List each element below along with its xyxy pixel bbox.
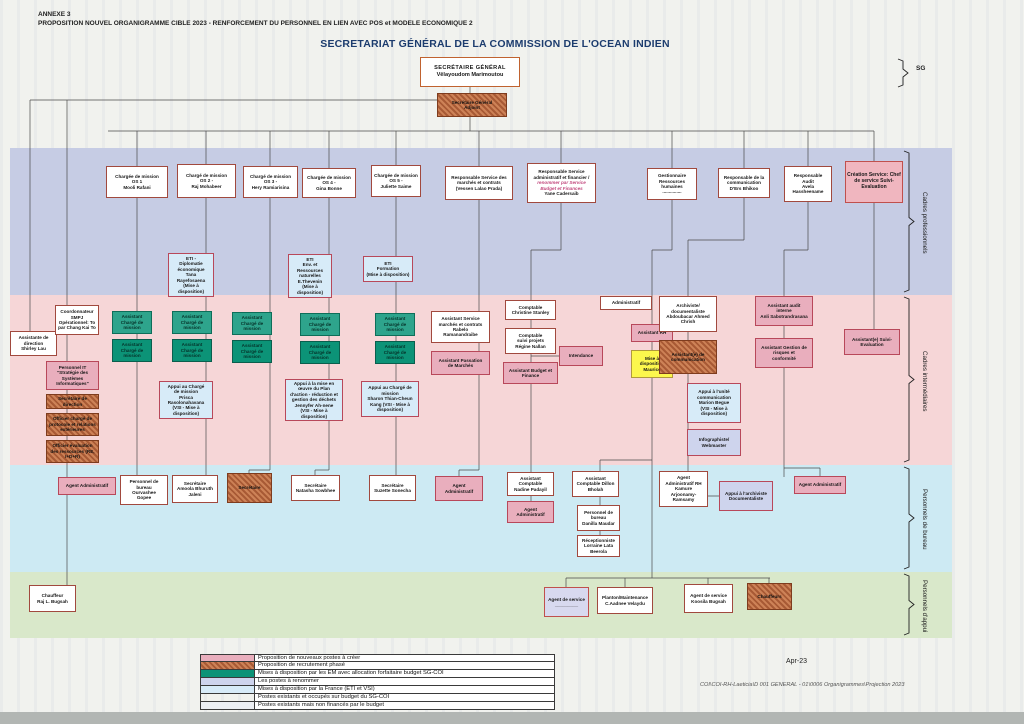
org-box-appui-charge-mission-1: Appui au Chargéde missionPriscaRasolonah… bbox=[159, 381, 213, 419]
org-box-officier-protocole: Officier chargé deprotocole et relations… bbox=[46, 413, 99, 436]
org-box-responsable-communication: Responsable de lacommunicationD'Ers Bhik… bbox=[718, 168, 770, 198]
legend-row: Proposition de recrutement phasé bbox=[200, 662, 555, 670]
legend-label: Mises à disposition par les EM avec allo… bbox=[255, 670, 555, 678]
organigramme-page: ANNEXE 3 PROPOSITION NOUVEL ORGANIGRAMME… bbox=[0, 0, 1024, 724]
legend-table: Proposition de nouveaux postes à créerPr… bbox=[200, 654, 555, 710]
legend-row: Postes existants mais non financés par l… bbox=[200, 702, 555, 710]
org-box-assistant-cm2-a: AssistantChargé demission bbox=[172, 311, 212, 334]
org-box-agent-administratif-1: Agent Administratif bbox=[58, 477, 116, 495]
org-box-administratif: Administratif bbox=[600, 296, 652, 310]
legend-swatch bbox=[200, 694, 255, 702]
org-box-assistant-communication: Assistant(e) decommunication bbox=[659, 340, 717, 374]
org-box-officier-evaluation-ressources: Officier évaluationdes ressources (RE,I+… bbox=[46, 440, 99, 463]
org-box-charge-mission-os2: Chargé de missionOS 2 -Raj Mohabeer bbox=[177, 164, 236, 198]
org-box-assistant-cm3-a: AssistantChargé demission bbox=[232, 312, 272, 335]
legend-swatch bbox=[200, 678, 255, 686]
org-box-charge-mission-os5: Chargée de missionOS 5 -Juliette Saime bbox=[371, 165, 421, 197]
org-chart: SECRÉTAIRE GÉNÉRALVêlayoudom MarimoutouS… bbox=[0, 0, 1024, 724]
org-box-responsable-administratif-financier: Responsable Serviceadministratif et fina… bbox=[527, 163, 596, 203]
legend-row: Proposition de nouveaux postes à créer bbox=[200, 654, 555, 662]
org-box-assistant-passation-marches: Assistant Passationde Marchés bbox=[431, 351, 490, 375]
legend-swatch bbox=[200, 670, 255, 678]
org-box-intendance: Intendance bbox=[559, 346, 603, 366]
org-box-assistant-cm4-a: AssistantChargé demission bbox=[300, 313, 340, 336]
org-box-archiviste-documentaliste: Archiviste/documentalisteAbdoubacar Ahme… bbox=[659, 296, 717, 332]
org-box-creation-service-suivi-evaluation: Création Service: Chefde service Suivi-E… bbox=[845, 161, 903, 203]
org-box-appui-archiviste: Appui à l'archivisteDocumentaliste bbox=[719, 481, 773, 511]
org-box-personnel-bureau-1: Personnel debureauOurvasheeGopee bbox=[120, 475, 168, 505]
legend-row: Mises à disposition par la France (ETI e… bbox=[200, 686, 555, 694]
org-box-infographiste-webmaster: Infographiste/Webmaster bbox=[687, 429, 741, 456]
legend-label: Les postes à renommer bbox=[255, 678, 555, 686]
legend-swatch bbox=[200, 654, 255, 662]
org-box-assistant-cm5-b: AssistantChargé demission bbox=[375, 341, 415, 364]
org-box-agent-administratif-2: AgentAdministratif bbox=[435, 476, 483, 501]
org-box-agent-administratif-4: Agent Administratif bbox=[794, 476, 846, 494]
org-box-charge-mission-os3: Chargé de missionOS 3 -Hery Ramiarisina bbox=[243, 166, 298, 198]
org-box-appui-plan-action-dechets: Appui à la mise enœuvre du Pland'action … bbox=[285, 379, 343, 421]
org-box-assistant-cm2-b: AssistantChargé demission bbox=[172, 339, 212, 362]
org-box-assistant-cm3-b: AssistantChargé demission bbox=[232, 340, 272, 363]
org-box-responsable-marches-contrats: Responsable Service desmarchés et contra… bbox=[445, 166, 513, 200]
org-box-assistante-direction: Assistante dedirectionShirley Lau bbox=[10, 331, 57, 356]
org-box-eti-diplomatie-economique: ETI -DiplomatieéconomiqueTanaRayefosaena… bbox=[168, 253, 214, 297]
legend-row: Postes existants et occupés sur budget d… bbox=[200, 694, 555, 702]
org-box-assistant-cm1-b: AssistantChargé demission bbox=[112, 339, 152, 362]
legend-label: Postes existants mais non financés par l… bbox=[255, 702, 555, 710]
org-box-coordonnateur-smpj: CoordonnateurSMPJOpérationnel: Topar Cha… bbox=[55, 305, 99, 335]
org-box-planton-maintenance: Planton/MaintenanceC.Aadnee Velaydu bbox=[597, 587, 653, 614]
org-box-receptionniste: RéceptionnisteLorraine LataBeerola bbox=[577, 535, 620, 557]
org-box-eti-formation: ETIFormation(Mise à disposition) bbox=[363, 256, 413, 282]
org-box-secretaire-general: SECRÉTAIRE GÉNÉRALVêlayoudom Marimoutou bbox=[420, 57, 520, 87]
legend-swatch bbox=[200, 662, 255, 670]
org-box-agent-administratif-3: AgentAdministratif bbox=[507, 501, 554, 523]
org-box-assistant-cm4-b: AssistantChargé demission bbox=[300, 341, 340, 364]
legend-row: Les postes à renommer bbox=[200, 678, 555, 686]
org-box-assistant-gestion-risques: Assistant Gestion derisques etconformité bbox=[755, 338, 813, 368]
org-box-secretaire-general-adjoint: Secrétaire GénéralAdjoint bbox=[437, 93, 507, 117]
org-box-chauffeurs: Chauffeurs bbox=[747, 583, 792, 610]
org-box-agent-de-service-2: Agent de serviceKoosila Bugsah bbox=[684, 584, 733, 613]
org-box-secretaire-nouvelle: Secrétaire bbox=[227, 473, 272, 503]
legend-label: Postes existants et occupés sur budget d… bbox=[255, 694, 555, 702]
legend-swatch bbox=[200, 686, 255, 694]
org-box-secretaire-de-direction: Secrétaire dedirection bbox=[46, 394, 99, 409]
org-box-assistant-service-marches: Assistant Servicemarchés et contratsRabe… bbox=[431, 311, 490, 343]
org-box-personnel-bureau-2: Personnel debureauDanilla Maudar bbox=[577, 505, 620, 531]
legend-label: Proposition de recrutement phasé bbox=[255, 662, 555, 670]
org-box-secretaire-1: SecrétaireAmoola BhuruthJaleni bbox=[172, 475, 218, 503]
legend-swatch bbox=[200, 702, 255, 710]
legend-row: Mises à disposition par les EM avec allo… bbox=[200, 670, 555, 678]
org-box-agent-administratif-rh: AgentAdministratif RHKamureArjoonamy-Ram… bbox=[659, 471, 708, 507]
org-box-appui-charge-mission-2: Appui au Chargé demissionSharon Thian-Ch… bbox=[361, 381, 419, 417]
org-box-charge-mission-os4: Chargée de missionOS 4 -Gina Bonne bbox=[302, 168, 356, 198]
org-box-charge-mission-os1: Chargée de missionOS 1Mooli Rafani bbox=[106, 166, 168, 198]
org-box-assistant-comptable-2: AssistantComptable DillonBholah bbox=[572, 471, 619, 497]
org-box-assistant-suivi-evaluation: Assistant(e) Suivi-Evaluation bbox=[844, 329, 900, 355]
org-box-personnel-it: Personnel IT"Stratégie desSystèmesInform… bbox=[46, 361, 99, 390]
org-box-comptable-suivi-projets: Comptablesuivi projetsRégine Nallan bbox=[505, 328, 556, 354]
org-box-assistant-budget-finance: Assistant Budget etFinance bbox=[503, 362, 558, 384]
org-box-chauffeur: ChauffeurRaj L. Bugsah bbox=[29, 585, 76, 612]
legend-label: Mises à disposition par la France (ETI e… bbox=[255, 686, 555, 694]
org-box-secretaire-3: SecrétaireSuzette Sonecha bbox=[369, 475, 416, 501]
org-box-appui-unite-communication: Appui à l'unitécommunicationMarion Begue… bbox=[687, 383, 741, 423]
org-box-assistant-comptable-1: AssistantComptableNadine Padayil bbox=[507, 472, 554, 496]
org-box-agent-de-service-1: Agent de service_________ bbox=[544, 587, 589, 617]
org-box-assistant-cm1-a: AssistantChargé demission bbox=[112, 311, 152, 334]
org-box-assistant-cm5-a: AssistantChargé demission bbox=[375, 313, 415, 336]
org-box-eti-environnement-ressources: ETIEnv. etRessourcesnaturellesE.Thevenin… bbox=[288, 254, 332, 298]
org-box-comptable: ComptableChristine Stanley bbox=[505, 300, 556, 320]
org-box-gestionnaire-rh: GestionnaireRessourceshumaines..........… bbox=[647, 168, 697, 200]
org-box-responsable-audit: ResponsableAuditAvelaHassheename bbox=[784, 166, 832, 202]
org-box-secretaire-2: SecrétaireNatasha Sowbhee bbox=[291, 475, 340, 501]
legend-label: Proposition de nouveaux postes à créer bbox=[255, 654, 555, 662]
org-box-assistant-audit-interne: Assistant auditinterneAnli Sabotrandrasa… bbox=[755, 296, 813, 326]
